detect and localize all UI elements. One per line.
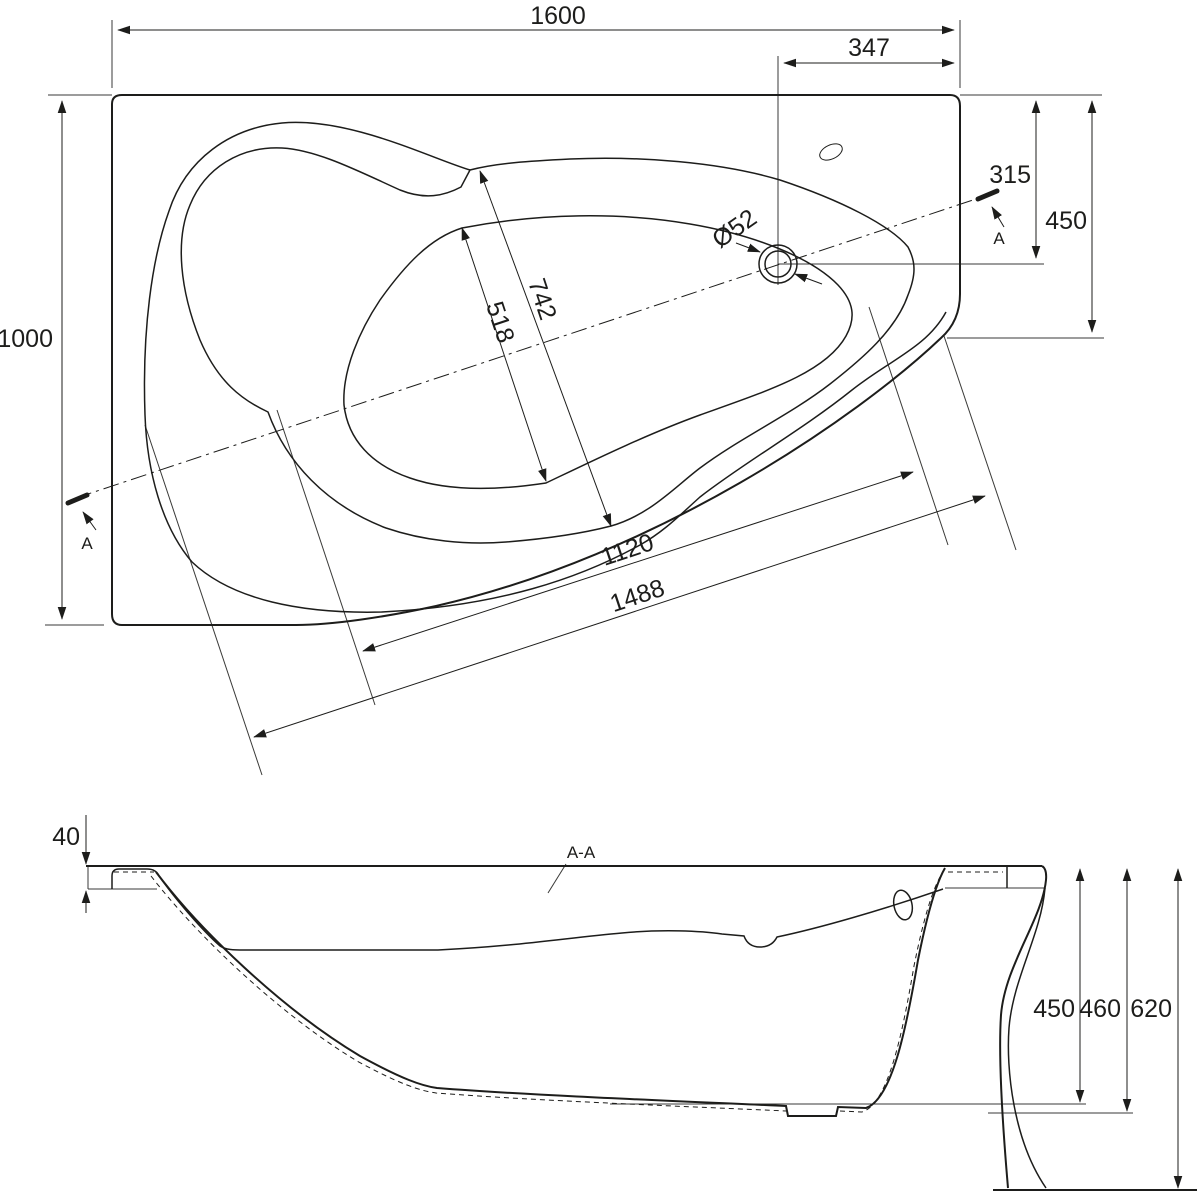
section-cut-line [76,195,988,498]
plan-extension-lines [45,20,1104,775]
dim-drain-top-label: 315 [989,161,1031,189]
tub-outer-envelope [112,95,960,625]
plan-dimension-lines [62,30,1092,737]
dim-overall-height-label: 620 [1130,995,1172,1023]
dim-shell-height-label: 460 [1079,995,1121,1023]
section-title-label: A-A [567,843,596,862]
section-dimension-lines [86,815,1178,1188]
dim-outer-length-label: 1488 [607,574,669,618]
overflow-hole-plan [817,141,845,164]
dim-well-width-label: 742 [522,275,562,323]
tub-well-edge [181,148,914,543]
section-view: A-A 40 450 460 620 [52,815,1197,1190]
plan-view: 1600 347 1000 315 450 Ø52 742 518 1120 1… [0,2,1104,775]
dim-inner-depth-label: 450 [1033,995,1075,1023]
bathtub-drawing-page: 1600 347 1000 315 450 Ø52 742 518 1120 1… [0,0,1200,1200]
section-cut-tick-left [68,495,87,503]
section-inner-well-line [159,876,943,950]
dim-overall-width-label: 1000 [0,325,53,353]
dim-rim-height-label: 40 [52,823,80,851]
section-extension-lines [88,864,1133,1113]
dim-drain-diameter-label: Ø52 [707,204,762,254]
section-skirt-back [1008,888,1046,1188]
dim-right-depth-label: 450 [1045,207,1087,235]
section-outer-shell-line [156,868,945,1116]
section-outer-shell-hatchband [151,876,940,1112]
dim-overall-length-label: 1600 [530,2,586,30]
section-cut-tick-right [978,191,997,199]
section-marker-a-right: A [993,229,1005,248]
section-marker-a-left: A [81,534,93,553]
drawing-canvas: 1600 347 1000 315 450 Ø52 742 518 1120 1… [0,0,1200,1200]
dim-drain-right-label: 347 [848,34,890,62]
tub-floor-outline [344,216,852,489]
dim-floor-width-label: 518 [480,298,520,346]
